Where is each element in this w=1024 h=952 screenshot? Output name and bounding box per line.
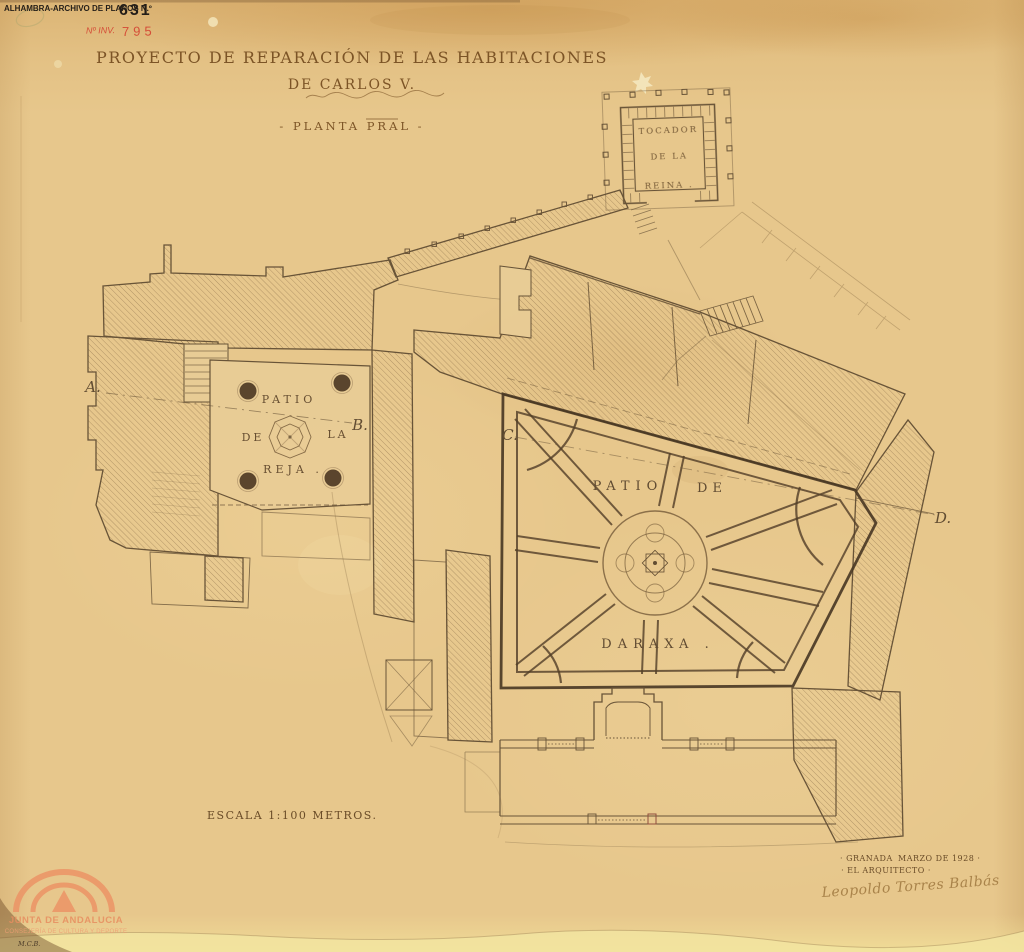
date-label: MARZO DE 1928 · — [898, 854, 980, 863]
mirador-bay — [594, 688, 662, 740]
signature-block: · GRANADA MARZO DE 1928 · · EL ARQUITECT… — [820, 854, 1000, 901]
plan-drawing: TOCADOR DE LA REINA . — [83, 88, 951, 847]
south-stub-wall — [205, 556, 243, 602]
reja-label-patio: PATIO — [262, 393, 316, 406]
north-range-wall — [103, 245, 398, 350]
northeast-block-wall — [414, 256, 905, 490]
inventory-stamp-number: 795 — [122, 23, 156, 39]
reja-label-de: DE — [242, 431, 265, 444]
section-label-c: C. — [502, 426, 518, 444]
inventory-stamp-label: Nº INV. — [86, 25, 115, 36]
archive-stamp: ALHAMBRA-ARCHIVO DE PLANOS N.º 631 — [4, 2, 152, 19]
patio-reja: PATIO DE LA REJA . — [210, 360, 370, 510]
subtitle-planta: - PLANTA PRAL - — [279, 119, 424, 133]
southeast-block-wall — [792, 688, 903, 842]
tocador-label-2: DE LA — [650, 151, 688, 162]
plan-scan-svg: ALHAMBRA-ARCHIVO DE PLANOS N.º 631 Nº IN… — [0, 0, 1024, 952]
section-label-b: B. — [351, 416, 368, 434]
watermark-org: JUNTA DE ANDALUCIA — [9, 915, 123, 926]
daraxa-central-fountain — [603, 511, 707, 615]
watermark-dept: CONSEJERÍA DE CULTURA Y DEPORTE — [5, 928, 128, 935]
section-label-a: A. — [83, 378, 101, 396]
daraxa-label-de: DE — [697, 481, 727, 496]
daraxa-label-patio: PATIO — [593, 479, 664, 494]
daraxa-label-daraxa: DARAXA . — [601, 637, 714, 652]
corridor-east-wall — [446, 550, 492, 742]
reja-label-la: LA — [327, 428, 348, 441]
scale-note: ESCALA 1:100 METROS. — [207, 809, 377, 822]
place-label: · GRANADA — [840, 854, 893, 863]
title-line1: PROYECTO DE REPARACIÓN DE LAS HABITACION… — [96, 47, 608, 67]
watermark-triangle — [52, 890, 76, 912]
paper-scuff — [208, 17, 218, 27]
archive-stamp-number: 631 — [119, 2, 152, 19]
title-line2: DE CARLOS V. — [288, 77, 416, 93]
archival-plan-sheet: ALHAMBRA-ARCHIVO DE PLANOS N.º 631 Nº IN… — [0, 0, 1024, 952]
reja-label-reja: REJA . — [263, 463, 323, 476]
section-label-d: D. — [934, 509, 951, 527]
title-block: PROYECTO DE REPARACIÓN DE LAS HABITACION… — [96, 47, 608, 133]
architect-role-label: · EL ARQUITECTO · — [841, 866, 931, 875]
tocador-label-3: REINA . — [645, 180, 694, 192]
inventory-stamp: Nº INV. 795 — [86, 23, 156, 39]
architect-signature: Leopoldo Torres Balbás — [820, 873, 1000, 901]
junta-andalucia-watermark: JUNTA DE ANDALUCIA CONSEJERÍA DE CULTURA… — [5, 872, 128, 935]
tocador-label-1: TOCADOR — [638, 125, 698, 137]
middle-wall-band — [372, 350, 414, 622]
annotator-initials: M.C.B. — [17, 940, 40, 948]
